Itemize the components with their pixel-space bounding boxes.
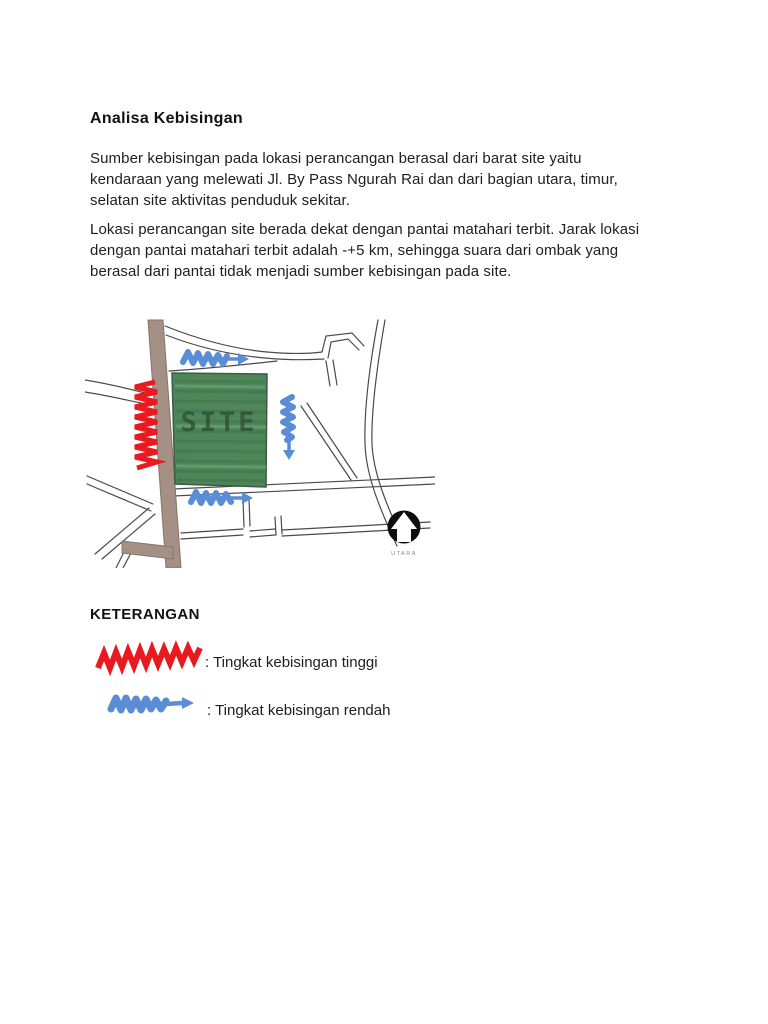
legend-low-noise-arrow-icon	[105, 688, 200, 720]
paragraph-line: selatan site aktivitas penduduk sekitar.	[90, 191, 700, 212]
site-area: SITE	[172, 373, 267, 487]
legend-heading: KETERANGAN	[90, 606, 200, 623]
paragraph-beach-distance: Lokasi perancangan site berada dekat den…	[90, 220, 700, 282]
page-title: Analisa Kebisingan	[90, 110, 243, 128]
paragraph-line: Sumber kebisingan pada lokasi perancanga…	[90, 149, 700, 170]
legend-high-noise-zigzag-icon	[94, 640, 204, 676]
paragraph-line: berasal dari pantai tidak menjadi sumber…	[90, 262, 700, 283]
paragraph-noise-sources: Sumber kebisingan pada lokasi perancanga…	[90, 149, 700, 211]
north-label: UTARA	[391, 551, 417, 557]
high-noise-zigzag-west	[135, 382, 157, 468]
low-noise-arrow-north	[183, 352, 249, 365]
paragraph-line: kendaraan yang melewati Jl. By Pass Ngur…	[90, 170, 700, 191]
low-noise-arrow-east	[283, 397, 295, 460]
site-map-figure: SITE UTARA	[85, 318, 435, 568]
paragraph-line: dengan pantai matahari terbit adalah -+5…	[90, 241, 700, 262]
document-page: Analisa Kebisingan Sumber kebisingan pad…	[0, 0, 768, 1024]
north-compass-icon: UTARA	[388, 511, 421, 558]
site-label: SITE	[180, 407, 257, 438]
legend-label-low: : Tingkat kebisingan rendah	[207, 702, 390, 719]
legend-label-high: : Tingkat kebisingan tinggi	[205, 654, 378, 671]
paragraph-line: Lokasi perancangan site berada dekat den…	[90, 220, 700, 241]
